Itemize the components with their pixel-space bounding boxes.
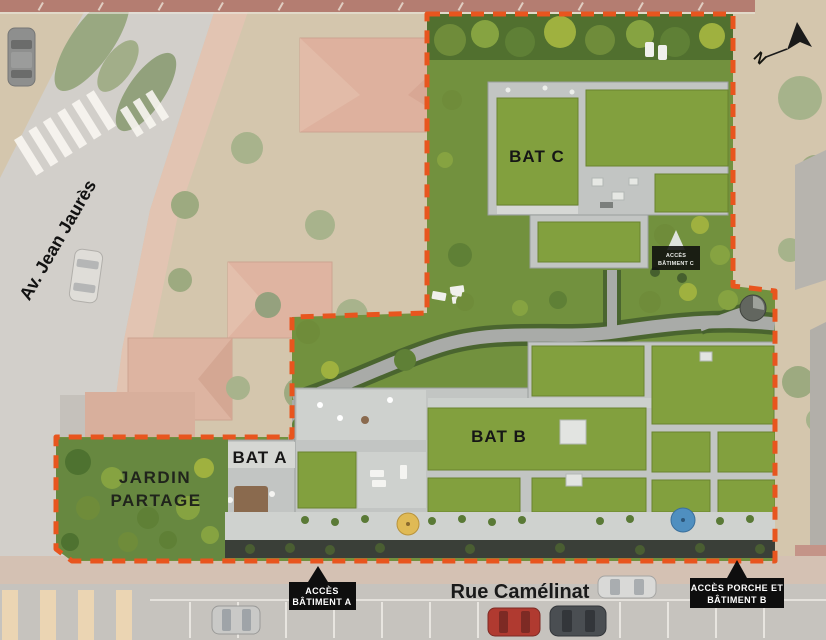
green-roof <box>652 432 710 472</box>
screenshot-root: ACCÈS BÂTIMENT C ACCÈS BÂTIMENT A <box>0 0 826 640</box>
green-roof <box>428 408 646 470</box>
green-roof <box>655 174 728 212</box>
access-badge-a-line2: BÂTIMENT A <box>292 596 351 607</box>
bat-c-label: BAT C <box>509 147 565 166</box>
bat-b-label: BAT B <box>471 427 527 446</box>
south-terrace <box>225 508 778 558</box>
access-badge-a-line1: ACCÈS <box>305 586 339 596</box>
car-red <box>488 608 540 636</box>
shared-garden-label-line2: PARTAGE <box>110 491 201 510</box>
green-roof <box>532 478 646 512</box>
bat-a-label: BAT A <box>232 448 287 467</box>
green-roof <box>538 222 640 262</box>
spiral-stair <box>740 295 766 321</box>
green-roof <box>586 90 728 166</box>
green-roof <box>532 346 644 396</box>
car-dark <box>550 606 606 636</box>
site-plan-canvas: ACCÈS BÂTIMENT C ACCÈS BÂTIMENT A <box>0 0 826 640</box>
access-badge-b-line1: ACCÈS PORCHE ET <box>691 583 784 593</box>
access-badge-c-line2: BÂTIMENT C <box>658 260 694 267</box>
green-roof <box>298 452 356 508</box>
dark-facade <box>225 540 778 558</box>
green-roof <box>428 478 520 512</box>
car-silver <box>212 606 260 634</box>
green-roof <box>718 432 775 472</box>
rue-camelinat-label: Rue Camélinat <box>451 581 590 603</box>
access-badge-b-line2: BÂTIMENT B <box>707 594 767 605</box>
green-roof <box>652 480 710 512</box>
access-badge-c-line1: ACCÈS <box>666 251 686 259</box>
car-white <box>598 576 656 598</box>
shared-garden-label-line1: JARDIN <box>119 468 191 487</box>
green-roof <box>652 346 774 424</box>
